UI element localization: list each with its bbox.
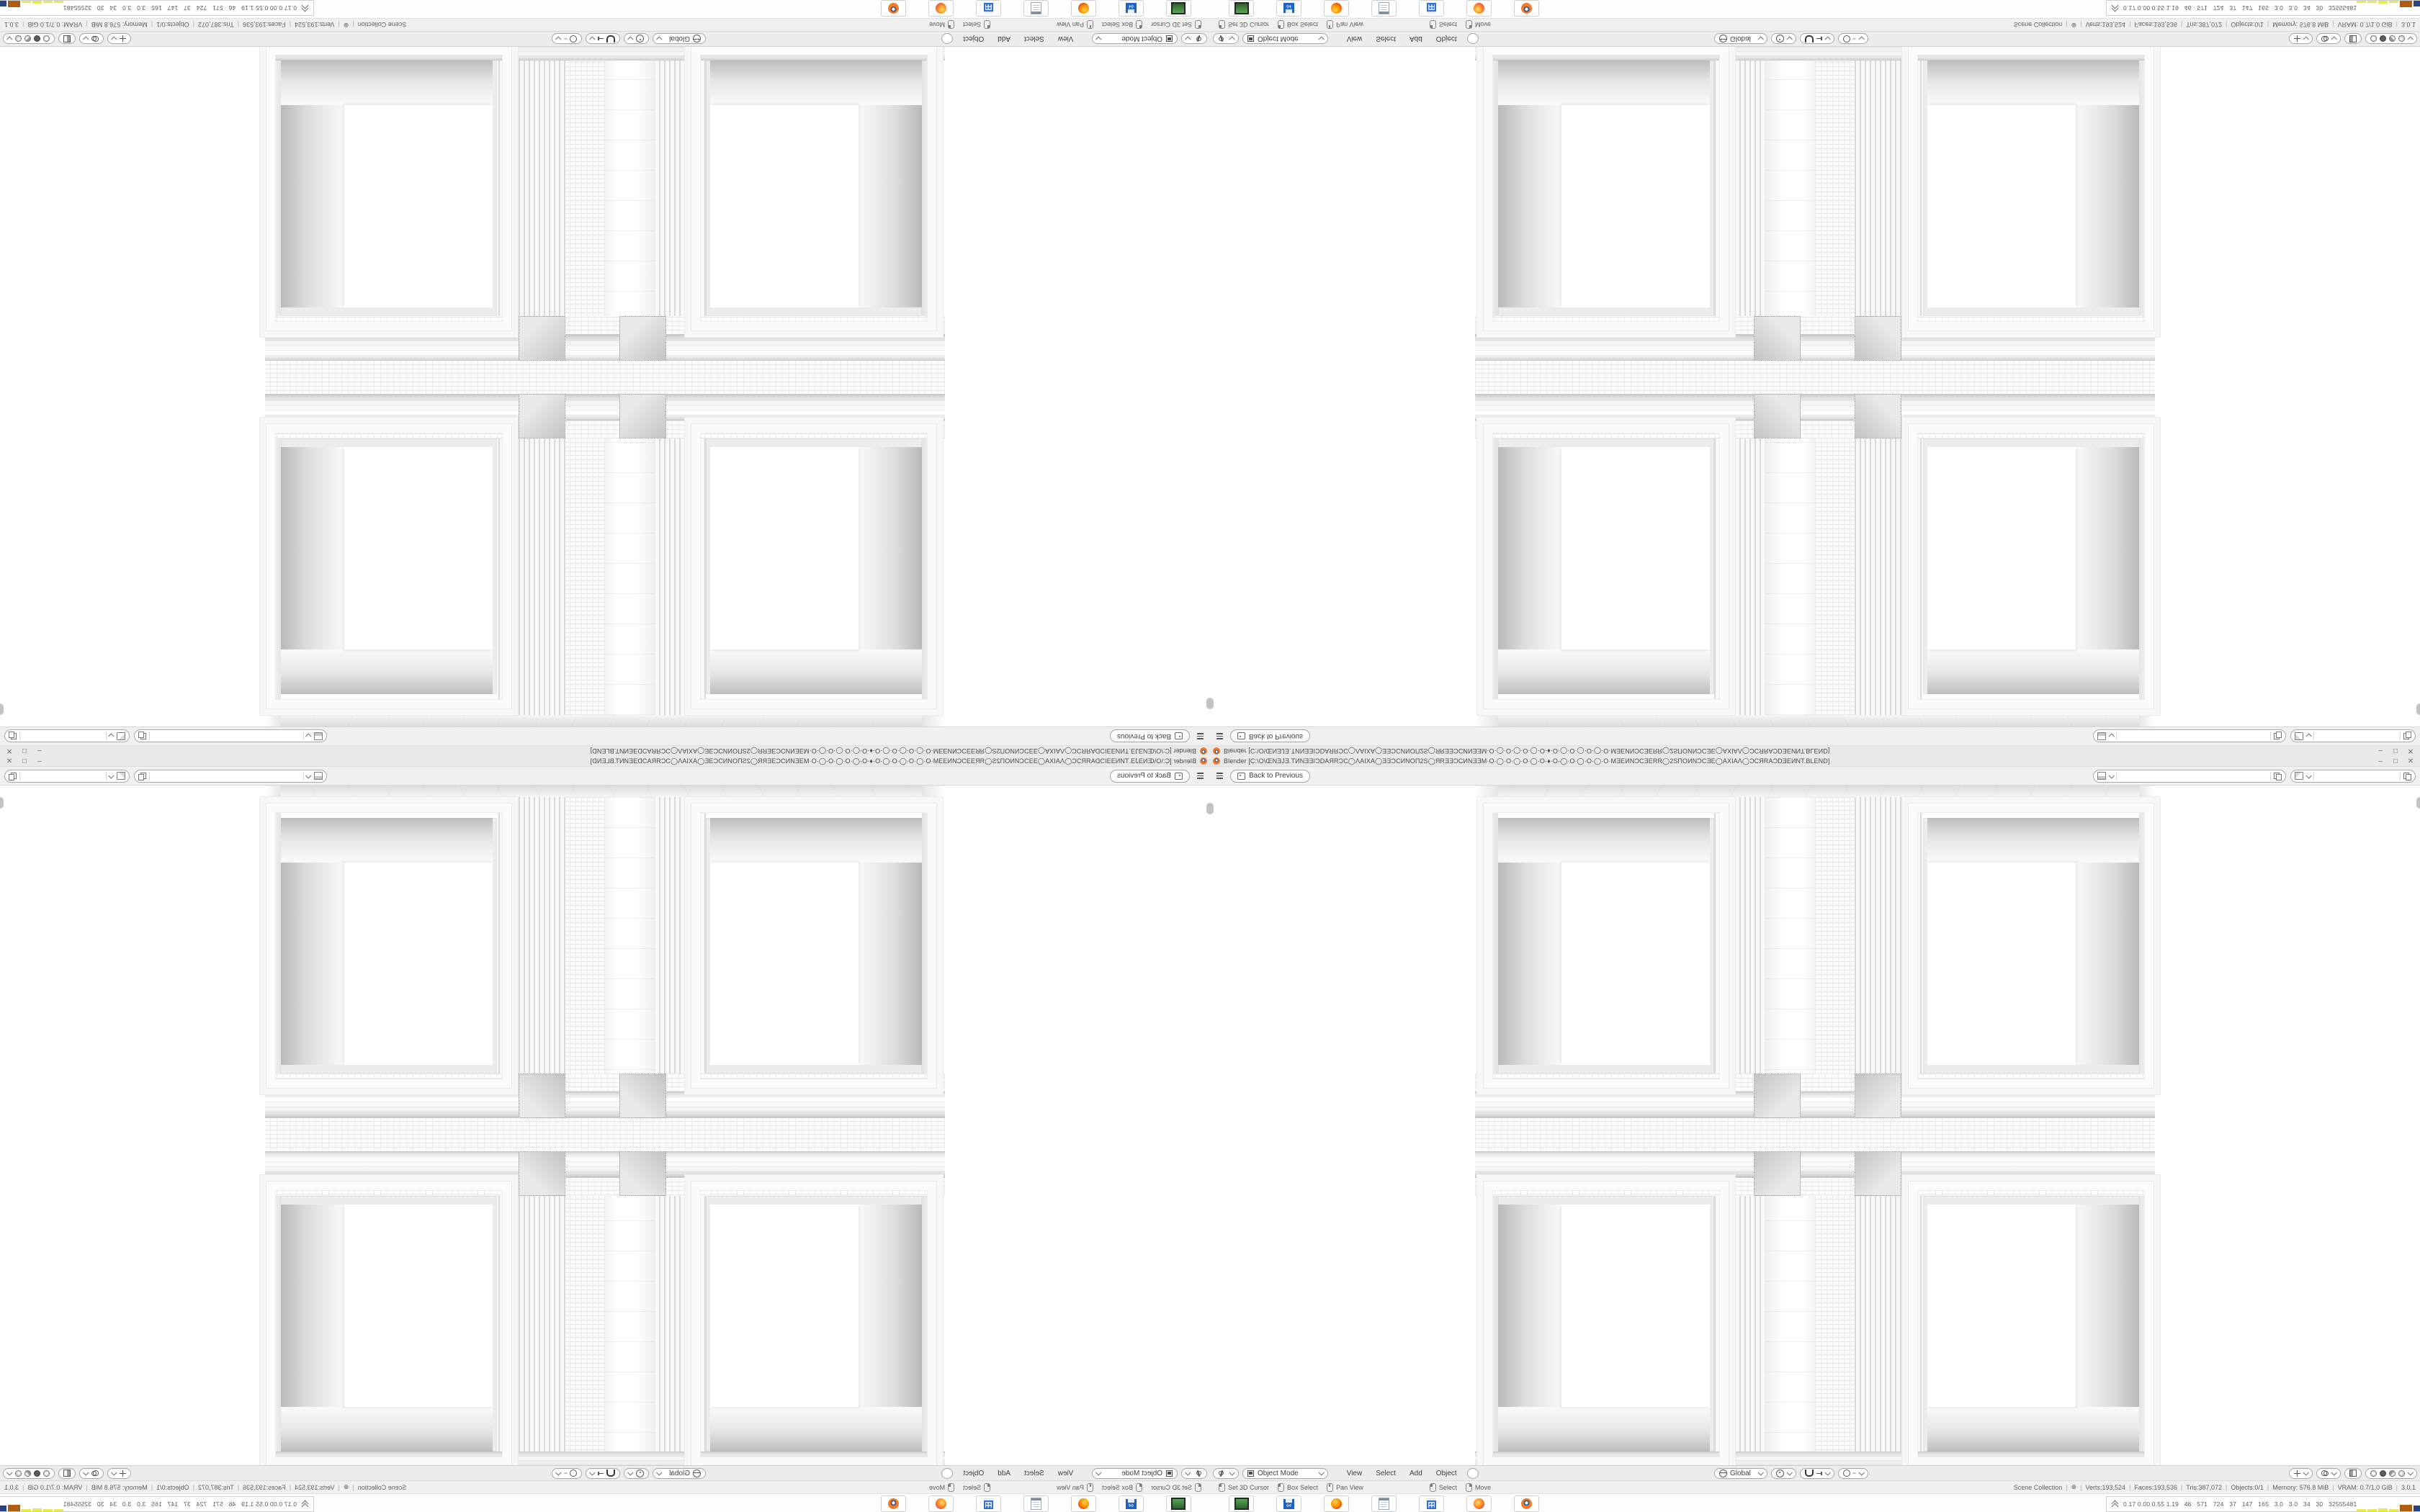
minimize-button[interactable]: – — [2376, 757, 2385, 766]
copy-icon[interactable] — [2274, 773, 2281, 780]
terminal-app-icon[interactable] — [1229, 1495, 1254, 1512]
chevron-down-icon — [555, 1470, 561, 1475]
falloff-curve-icon: ~ — [1852, 1470, 1856, 1476]
editor-type-dropdown[interactable] — [1213, 1468, 1239, 1479]
pivot-point-dropdown[interactable] — [624, 1468, 649, 1479]
chevron-down-icon — [1318, 36, 1324, 42]
menu-add[interactable]: Add — [1410, 35, 1422, 43]
chevron-down-icon — [111, 36, 117, 42]
snapping-control[interactable] — [586, 1468, 620, 1479]
verts-stat: Verts:193,524 — [295, 22, 335, 29]
3d-viewport[interactable] — [1210, 786, 2420, 1465]
overlays-dropdown[interactable] — [2316, 34, 2341, 45]
window-opening — [706, 438, 922, 694]
editor-type-dropdown[interactable] — [1213, 34, 1239, 45]
hint-box-select: Box Select — [1102, 21, 1142, 30]
shading-wireframe-icon[interactable] — [2370, 36, 2377, 42]
chevron-down-icon — [2108, 734, 2114, 739]
display-cluster — [3, 1468, 131, 1479]
back-arrow-icon — [1237, 733, 1245, 740]
mode-dropdown[interactable]: Object Mode — [1242, 34, 1328, 45]
save64-app-icon[interactable]: 64 — [1276, 1495, 1301, 1512]
tris-stat: Tris:387,072 — [2186, 22, 2222, 29]
shading-mode-group[interactable] — [3, 1468, 55, 1479]
chevron-down-icon — [555, 36, 561, 42]
menu-view[interactable]: View — [1347, 1470, 1363, 1477]
viewlayer-selector[interactable] — [4, 730, 130, 743]
proportional-edit-control[interactable]: ~ — [552, 34, 582, 45]
orientation-label: Global — [669, 1470, 690, 1477]
objects-stat: Objects:0/1 — [156, 1484, 189, 1491]
blender-logo-icon — [1213, 757, 1220, 765]
copy-icon[interactable] — [2274, 733, 2281, 740]
editor-type-icon — [1218, 36, 1224, 42]
chevron-down-icon — [1786, 36, 1792, 42]
scene-selector[interactable] — [2093, 770, 2286, 783]
editor-type-icon — [1218, 1470, 1224, 1477]
mode-dropdown[interactable]: Object Mode — [1092, 34, 1178, 45]
chevron-down-icon — [305, 773, 311, 778]
proportional-edit-control[interactable]: ~ — [1838, 1468, 1868, 1479]
calculator-app-icon[interactable] — [976, 1495, 1001, 1512]
chevron-down-icon — [2407, 1470, 2413, 1475]
mouse-left-icon — [1195, 1483, 1201, 1492]
scene-name-field[interactable] — [2116, 732, 2271, 741]
shading-material-icon[interactable] — [24, 36, 31, 42]
save64-app-icon[interactable]: 64 — [1119, 1495, 1144, 1512]
sidebar-collapse-tab[interactable] — [0, 797, 4, 809]
3d-viewport[interactable] — [1210, 47, 2420, 726]
viewlayer-name-field[interactable] — [19, 732, 107, 741]
proportional-circle-icon — [1843, 1470, 1850, 1477]
chevron-down-icon — [1185, 36, 1191, 42]
chevron-down-icon — [305, 734, 311, 739]
chevron-down-icon — [1859, 36, 1865, 42]
browser-app-icon[interactable] — [928, 0, 954, 17]
chevron-down-icon — [1859, 1470, 1865, 1475]
mouse-left-icon — [984, 1483, 990, 1492]
viewlayer-selector[interactable] — [4, 770, 130, 783]
blender-app-icon[interactable] — [1514, 1495, 1539, 1512]
version-label: 3.0.1 — [4, 1484, 19, 1491]
firefox-app-icon[interactable] — [1324, 0, 1349, 17]
tris-stat: Tris:387,072 — [198, 1484, 234, 1491]
3d-viewport[interactable] — [0, 47, 1210, 726]
terminal-app-icon[interactable] — [1229, 0, 1254, 17]
viewlayer-name-field[interactable] — [2313, 732, 2401, 741]
chevron-down-icon — [111, 1470, 117, 1475]
shading-wireframe-icon[interactable] — [2370, 1470, 2377, 1477]
viewport-menus: View Select Add Object — [1347, 1470, 1457, 1477]
viewlayer-name-field[interactable] — [19, 772, 107, 780]
scene-stats: Scene Collection | ⊕ | Verts:193,524 | F… — [2014, 1483, 2420, 1491]
overlays-dropdown[interactable] — [79, 34, 104, 45]
hint-move: Move — [1466, 1483, 1491, 1492]
shading-material-icon[interactable] — [24, 1470, 31, 1477]
pivot-point-dropdown[interactable] — [624, 34, 649, 45]
overlays-icon — [91, 36, 99, 42]
chevron-down-icon — [589, 36, 595, 42]
window-controls: – □ ✕ — [2376, 747, 2420, 756]
browser-app-icon[interactable] — [1466, 0, 1492, 17]
magnet-icon — [1805, 1470, 1814, 1477]
mouse-left-icon — [1430, 21, 1436, 30]
snapping-control[interactable] — [1800, 1468, 1834, 1479]
window-controls: – □ ✕ — [0, 757, 44, 766]
status-bar: Set 3D Cursor Box Select Pan View Select… — [0, 1480, 1210, 1493]
taskbar: 64 0.17 0.00 0.55 1.19 46 571 724 37 147… — [0, 1493, 1210, 1512]
firefox-app-icon[interactable] — [1071, 0, 1096, 17]
close-button[interactable]: ✕ — [2406, 757, 2415, 766]
mouse-left-icon — [1430, 1483, 1436, 1492]
back-to-previous-button[interactable]: Back to Previous — [1230, 770, 1310, 783]
menu-object[interactable]: Object — [963, 1470, 984, 1477]
window-opening — [1498, 60, 1714, 316]
calculator-app-icon[interactable] — [1419, 1495, 1444, 1512]
verts-stat: Verts:193,524 — [295, 1484, 335, 1491]
hint-select: Select — [1430, 1483, 1457, 1492]
overlays-dropdown[interactable] — [2316, 1468, 2341, 1479]
pivot-icon — [636, 35, 644, 43]
transform-cluster: Global ~ — [552, 34, 706, 45]
blender-window: Blender [C:\O\ŒNƎJƎ.TИNƎƎIƆDAЯRƆC◯ΛAIXA◯… — [1210, 756, 2420, 1512]
chevron-down-icon — [2305, 734, 2311, 739]
editor-type-dropdown[interactable] — [1181, 34, 1207, 45]
hint-set-3d-cursor: Set 3D Cursor — [1151, 1483, 1201, 1492]
menu-add[interactable]: Add — [998, 35, 1010, 43]
menu-view[interactable]: View — [1058, 1470, 1074, 1477]
hamburger-menu-icon[interactable] — [1216, 773, 1223, 779]
tris-stat: Tris:387,072 — [198, 22, 234, 29]
chevron-down-icon — [627, 36, 633, 42]
faces-stat: Faces:193,536 — [243, 22, 286, 29]
copy-icon[interactable] — [9, 733, 17, 740]
scene-collection-label: Scene Collection — [358, 1484, 407, 1491]
back-to-previous-label: Back to Previous — [1249, 732, 1303, 740]
object-mode-icon — [1166, 1470, 1173, 1477]
window-title: Blender [C:\O\ŒNƎJƎ.TИNƎƎIƆDAЯRƆC◯ΛAIXA◯… — [591, 757, 1196, 765]
hint-pan-view: Pan View — [1327, 21, 1363, 30]
transform-orientation-dropdown[interactable]: Global — [1714, 1468, 1767, 1479]
chevron-down-icon — [1229, 1470, 1234, 1475]
maximize-button[interactable]: □ — [2391, 747, 2400, 756]
chevron-down-icon — [83, 1470, 89, 1475]
firefox-app-icon[interactable] — [1324, 1495, 1349, 1512]
notepad-app-icon[interactable] — [1371, 0, 1397, 17]
header-tool-button[interactable] — [1467, 34, 1479, 45]
pivot-point-dropdown[interactable] — [1771, 1468, 1796, 1479]
blender-app-icon[interactable] — [881, 0, 906, 17]
falloff-curve-icon: ~ — [564, 36, 568, 42]
window-title: Blender [C:\O\ŒNƎJƎ.TИNƎƎIƆDAЯRƆC◯ΛAIXA◯… — [1224, 747, 1829, 755]
minimize-button[interactable]: – — [35, 757, 44, 766]
window-opening — [281, 818, 497, 1074]
status-bar: Set 3D Cursor Box Select Pan View Select… — [0, 19, 1210, 32]
minimize-button[interactable]: – — [2376, 747, 2385, 756]
performance-values: 0.17 0.00 0.55 1.19 46 571 724 37 147 16… — [63, 1500, 297, 1508]
scene-facade — [1475, 47, 2155, 726]
scene-collection-label: Scene Collection — [2014, 22, 2063, 29]
mouse-middle-icon — [1087, 21, 1093, 30]
terminal-app-icon[interactable] — [1166, 0, 1191, 17]
mouse-middle-icon — [1327, 21, 1333, 30]
chevron-down-icon — [6, 1470, 12, 1475]
pivot-point-dropdown[interactable] — [1771, 34, 1796, 45]
scene-selector[interactable] — [134, 730, 327, 743]
hamburger-menu-icon[interactable] — [1197, 733, 1204, 739]
pivot-icon — [636, 1470, 644, 1477]
shading-mode-group[interactable] — [3, 34, 55, 45]
blender-window: Blender [C:\O\ŒNƎJƎ.TИNƎƎIƆDAЯRƆC◯ΛAIXA◯… — [0, 756, 1210, 1512]
snap-target-icon — [1816, 1471, 1822, 1476]
viewport-header: Object Mode View Select Add Object Globa… — [1210, 1465, 2420, 1480]
header-tool-button[interactable] — [941, 34, 953, 45]
chevron-down-icon — [2305, 773, 2311, 778]
header-tool-button[interactable] — [1467, 1468, 1479, 1479]
calculator-app-icon[interactable] — [1419, 0, 1444, 17]
shading-solid-icon[interactable] — [34, 1470, 40, 1477]
menu-select[interactable]: Select — [1024, 35, 1044, 43]
window-titlebar: Blender [C:\O\ŒNƎJƎ.TИNƎƎIƆDAЯRƆC◯ΛAIXA◯… — [0, 756, 1210, 767]
menu-view[interactable]: View — [1058, 35, 1074, 43]
xray-toggle[interactable] — [58, 34, 76, 45]
blender-app-icon[interactable] — [881, 1495, 906, 1512]
scene-name-field[interactable] — [2116, 772, 2271, 780]
scene-icon — [2097, 772, 2106, 780]
back-to-previous-label: Back to Previous — [1117, 772, 1171, 780]
sidebar-collapse-tab[interactable] — [0, 703, 4, 715]
window-opening — [1498, 818, 1714, 1074]
shading-mode-group[interactable] — [2365, 34, 2417, 45]
maximize-button[interactable]: □ — [2391, 757, 2400, 766]
chevron-down-icon — [1229, 36, 1234, 42]
transform-orientation-dropdown[interactable]: Global — [1714, 34, 1767, 45]
window-opening — [706, 1196, 922, 1452]
back-to-previous-button[interactable]: Back to Previous — [1110, 770, 1190, 783]
browser-app-icon[interactable] — [928, 1495, 954, 1512]
window-controls: – □ ✕ — [2376, 757, 2420, 766]
scene-name-field[interactable] — [149, 772, 304, 780]
scene-icon — [2097, 732, 2106, 740]
overlays-icon — [91, 1470, 99, 1476]
overlays-dropdown[interactable] — [79, 1468, 104, 1479]
menu-select[interactable]: Select — [1024, 1470, 1044, 1477]
scene-stats: Scene Collection | ⊕ | Verts:193,524 | F… — [2014, 21, 2420, 29]
magnet-icon — [606, 35, 615, 42]
xray-toggle[interactable] — [58, 1468, 76, 1479]
copy-icon[interactable] — [139, 733, 146, 740]
scene-facade — [265, 786, 945, 1465]
mouse-left-drag-icon — [1136, 1483, 1142, 1492]
viewlayer-selector[interactable] — [2290, 770, 2416, 783]
blender-logo-icon — [1200, 747, 1207, 755]
back-to-previous-label: Back to Previous — [1117, 732, 1171, 740]
hint-box-select: Box Select — [1278, 1483, 1318, 1492]
display-cluster — [2289, 34, 2417, 45]
save64-app-icon[interactable]: 64 — [1276, 0, 1301, 17]
close-button[interactable]: ✕ — [2406, 747, 2415, 756]
viewlayer-selector[interactable] — [2290, 730, 2416, 743]
scene-selector[interactable] — [134, 770, 327, 783]
back-to-previous-label: Back to Previous — [1249, 772, 1303, 780]
window-opening — [706, 60, 922, 316]
xray-icon — [63, 1470, 71, 1477]
overlays-icon — [2321, 1470, 2329, 1476]
viewlayer-icon — [117, 772, 125, 780]
pivot-icon — [1776, 35, 1784, 43]
shading-material-icon[interactable] — [2389, 1470, 2396, 1477]
save64-app-icon[interactable]: 64 — [1119, 0, 1144, 17]
editor-type-icon — [1196, 1470, 1202, 1477]
browser-app-icon[interactable] — [1466, 1495, 1492, 1512]
menu-view[interactable]: View — [1347, 35, 1363, 43]
transform-orientation-dropdown[interactable]: Global — [653, 1468, 706, 1479]
close-button[interactable]: ✕ — [5, 757, 14, 766]
notepad-app-icon[interactable] — [1023, 0, 1049, 17]
notepad-app-icon[interactable] — [1371, 1495, 1397, 1512]
blender-app-icon[interactable] — [1514, 0, 1539, 17]
gizmos-dropdown[interactable] — [2289, 34, 2313, 45]
performance-overlay: 0.17 0.00 0.55 1.19 46 571 724 37 147 16… — [2106, 0, 2420, 16]
menu-select[interactable]: Select — [1376, 35, 1396, 43]
blender-window: Blender [C:\O\ŒNƎJƎ.TИNƎƎIƆDAЯRƆC◯ΛAIXA◯… — [0, 0, 1210, 756]
copy-icon[interactable] — [2403, 773, 2411, 780]
falloff-curve-icon: ~ — [564, 1470, 568, 1476]
chevron-up-double-icon — [2112, 5, 2118, 12]
back-to-previous-button[interactable]: Back to Previous — [1110, 730, 1190, 743]
snapping-control[interactable] — [1800, 34, 1834, 45]
gizmos-dropdown[interactable] — [2289, 1468, 2313, 1479]
hamburger-menu-icon[interactable] — [1216, 733, 1223, 739]
memory-stat: Memory: 576.8 MiB — [91, 1484, 148, 1491]
blender-logo-icon — [1213, 747, 1220, 755]
shading-solid-icon[interactable] — [2380, 1470, 2386, 1477]
shading-mode-group[interactable] — [2365, 1468, 2417, 1479]
chevron-down-icon — [1318, 1470, 1324, 1475]
scene-name-field[interactable] — [149, 732, 304, 741]
xray-toggle[interactable] — [2344, 1468, 2362, 1479]
hint-pan-view: Pan View — [1327, 1483, 1363, 1492]
shading-solid-icon[interactable] — [34, 36, 40, 42]
shading-material-icon[interactable] — [2389, 36, 2396, 42]
chevron-down-icon — [2331, 36, 2336, 42]
verts-stat: Verts:193,524 — [2086, 22, 2126, 29]
shading-wireframe-icon[interactable] — [43, 36, 50, 42]
chevron-down-icon — [2108, 773, 2114, 778]
copy-icon[interactable] — [2403, 733, 2411, 740]
viewlayer-icon — [2295, 732, 2303, 740]
close-button[interactable]: ✕ — [5, 747, 14, 756]
menu-add[interactable]: Add — [1410, 1470, 1422, 1477]
status-bar: Set 3D Cursor Box Select Pan View Select… — [1210, 19, 2420, 32]
shading-rendered-icon[interactable] — [15, 36, 22, 42]
mode-dropdown[interactable]: Object Mode — [1242, 1468, 1328, 1479]
xray-toggle[interactable] — [2344, 34, 2362, 45]
maximize-button[interactable]: □ — [20, 747, 29, 756]
maximize-button[interactable]: □ — [20, 757, 29, 766]
toolbar-collapse-tab[interactable] — [1210, 698, 1214, 709]
notepad-app-icon[interactable] — [1023, 1495, 1049, 1512]
snapping-control[interactable] — [586, 34, 620, 45]
copy-icon[interactable] — [139, 773, 146, 780]
gizmo-icon — [120, 36, 126, 42]
proportional-edit-control[interactable]: ~ — [552, 1468, 582, 1479]
terminal-app-icon[interactable] — [1166, 1495, 1191, 1512]
topbar: Back to Previous — [1210, 726, 2420, 745]
menu-add[interactable]: Add — [998, 1470, 1010, 1477]
objects-stat: Objects:0/1 — [2231, 22, 2264, 29]
editor-type-dropdown[interactable] — [1181, 1468, 1207, 1479]
back-to-previous-button[interactable]: Back to Previous — [1230, 730, 1310, 743]
sidebar-collapse-tab[interactable] — [2416, 797, 2420, 809]
taskbar: 64 0.17 0.00 0.55 1.19 46 571 724 37 147… — [0, 0, 1210, 19]
hamburger-menu-icon[interactable] — [1197, 773, 1204, 779]
window-opening — [1923, 818, 2139, 1074]
sidebar-collapse-tab[interactable] — [2416, 703, 2420, 715]
viewport-menus: View Select Add Object — [963, 35, 1073, 43]
calculator-app-icon[interactable] — [976, 0, 1001, 17]
toolbar-collapse-tab[interactable] — [1210, 803, 1214, 814]
mouse-right-icon — [1466, 1483, 1472, 1492]
proportional-edit-control[interactable]: ~ — [1838, 34, 1868, 45]
mouse-left-icon — [984, 21, 990, 30]
menu-select[interactable]: Select — [1376, 1470, 1396, 1477]
menu-object[interactable]: Object — [963, 35, 984, 43]
shading-rendered-icon[interactable] — [2398, 1470, 2405, 1477]
chevron-down-icon — [108, 773, 114, 778]
mode-dropdown[interactable]: Object Mode — [1092, 1468, 1178, 1479]
scene-selector[interactable] — [2093, 730, 2286, 743]
hint-select: Select — [963, 1483, 990, 1492]
scene-collection-label: Scene Collection — [2014, 1484, 2063, 1491]
chevron-down-icon — [83, 36, 89, 42]
screen-icon: ⊕ — [2071, 1483, 2077, 1491]
firefox-app-icon[interactable] — [1071, 1495, 1096, 1512]
mouse-middle-icon — [1087, 1483, 1093, 1492]
shading-solid-icon[interactable] — [2380, 36, 2386, 42]
chevron-up-double-icon — [302, 1501, 308, 1508]
chevron-down-icon — [656, 1470, 662, 1475]
shading-wireframe-icon[interactable] — [43, 1470, 50, 1477]
hint-select: Select — [1430, 21, 1457, 30]
gizmo-icon — [120, 1470, 126, 1477]
viewport-header: Object Mode View Select Add Object Globa… — [0, 1465, 1210, 1480]
transform-orientation-dropdown[interactable]: Global — [653, 34, 706, 45]
topbar: Back to Previous — [0, 726, 1210, 745]
screen: Blender [C:\O\ŒNƎJƎ.TИNƎƎIƆDAЯRƆC◯ΛAIXA◯… — [0, 0, 2420, 1512]
mode-label: Object Mode — [1121, 35, 1162, 43]
objects-stat: Objects:0/1 — [2231, 1484, 2264, 1491]
viewlayer-icon — [117, 732, 125, 740]
gizmos-dropdown[interactable] — [107, 1468, 131, 1479]
taskbar-apps: 64 — [1229, 0, 1539, 17]
scene-facade — [1475, 786, 2155, 1465]
menu-object[interactable]: Object — [1436, 1470, 1457, 1477]
back-arrow-icon — [1175, 773, 1183, 780]
viewlayer-name-field[interactable] — [2313, 772, 2401, 780]
chevron-down-icon — [1095, 36, 1101, 42]
shading-rendered-icon[interactable] — [15, 1470, 22, 1477]
menu-object[interactable]: Object — [1436, 35, 1457, 43]
gizmos-dropdown[interactable] — [107, 34, 131, 45]
copy-icon[interactable] — [9, 773, 17, 780]
minimize-button[interactable]: – — [35, 747, 44, 756]
3d-viewport[interactable] — [0, 786, 1210, 1465]
mouse-left-icon — [1219, 1483, 1225, 1492]
shading-rendered-icon[interactable] — [2398, 36, 2405, 42]
snap-target-icon — [1816, 37, 1822, 42]
header-tool-button[interactable] — [941, 1468, 953, 1479]
